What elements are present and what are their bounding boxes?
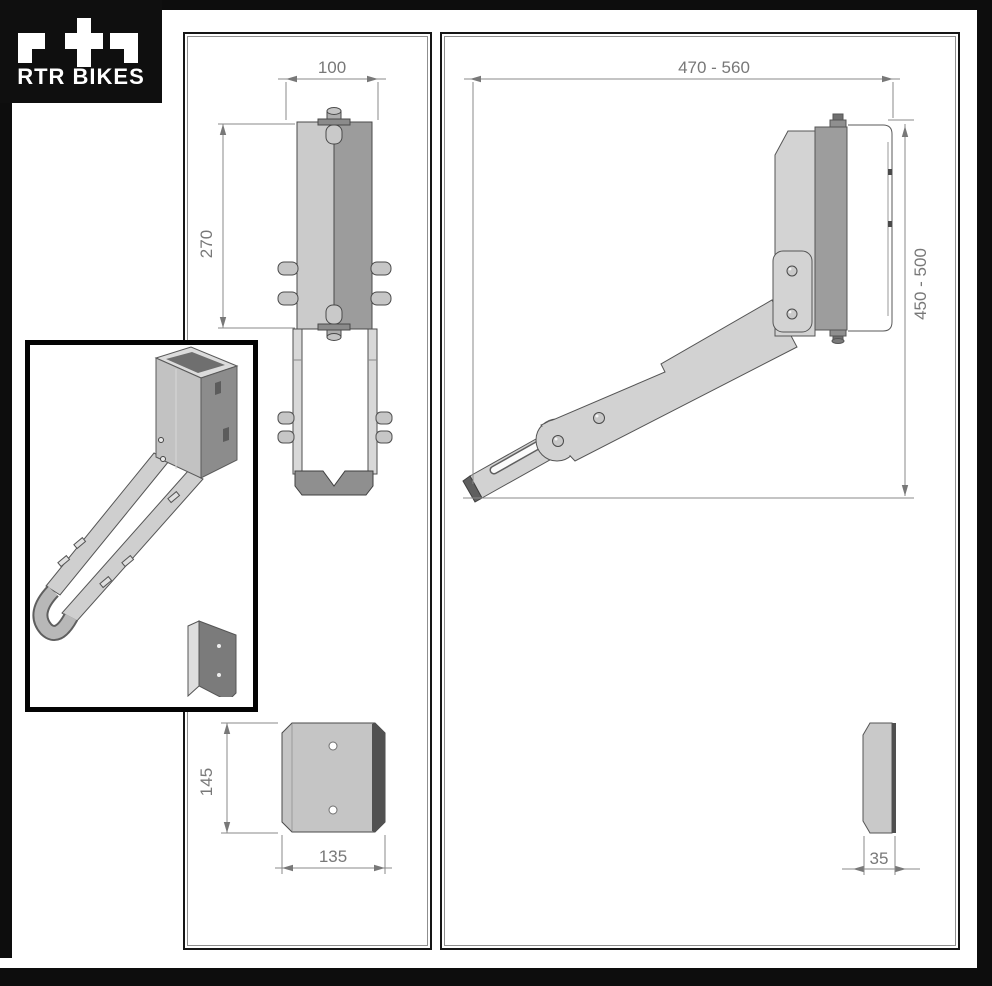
- base-plate: [282, 723, 385, 832]
- frame-right-bar: [977, 0, 992, 986]
- dim-plate-thickness-label: 35: [870, 849, 889, 868]
- pin: [278, 431, 294, 443]
- side-view-panel: 470 - 560 450 - 500 35: [440, 32, 960, 950]
- clamp-head: [773, 114, 892, 344]
- frame-bottom-bar: [0, 968, 992, 986]
- rtr-bikes-logo: RTR BIKES: [0, 0, 162, 103]
- dim-height-label: 450 - 500: [911, 248, 930, 320]
- joint-rivet: [787, 266, 797, 276]
- pin: [376, 412, 392, 424]
- pin: [278, 412, 294, 424]
- plate-hole: [329, 742, 337, 750]
- plate-hole: [329, 806, 337, 814]
- isometric-drawing: [30, 345, 243, 697]
- iso-frame: [156, 347, 237, 478]
- plate-side-profile: [863, 723, 896, 833]
- pivot-rivet: [553, 436, 564, 447]
- iso-rivet: [161, 457, 166, 462]
- iso-rivet: [159, 438, 164, 443]
- clamp-rails: [278, 329, 392, 495]
- dim-plate-height-label: 145: [197, 768, 216, 796]
- clamp-column: [278, 108, 391, 341]
- head-top-bolt: [833, 114, 843, 120]
- iso-base-plate: [188, 621, 236, 697]
- side-view-drawing: 470 - 560 450 - 500 35: [442, 34, 954, 944]
- pin: [371, 262, 391, 275]
- support-arm: [463, 300, 797, 502]
- arm-rivet: [594, 413, 605, 424]
- dim-height-label: 270: [197, 230, 216, 258]
- joint-rivet: [787, 309, 797, 319]
- brand-name: RTR BIKES: [0, 64, 162, 90]
- dim-width-label: 100: [318, 58, 346, 77]
- pin: [278, 292, 298, 305]
- pin: [278, 262, 298, 275]
- product-drawing-screen: RTR BIKES: [0, 0, 992, 986]
- frame-left-bar: [0, 0, 12, 958]
- isometric-view-box: [25, 340, 258, 712]
- pin: [371, 292, 391, 305]
- dim-plate-width-label: 135: [319, 847, 347, 866]
- v-bracket: [295, 471, 373, 495]
- pin: [376, 431, 392, 443]
- dim-reach-label: 470 - 560: [678, 58, 750, 77]
- iso-arms: [40, 453, 203, 633]
